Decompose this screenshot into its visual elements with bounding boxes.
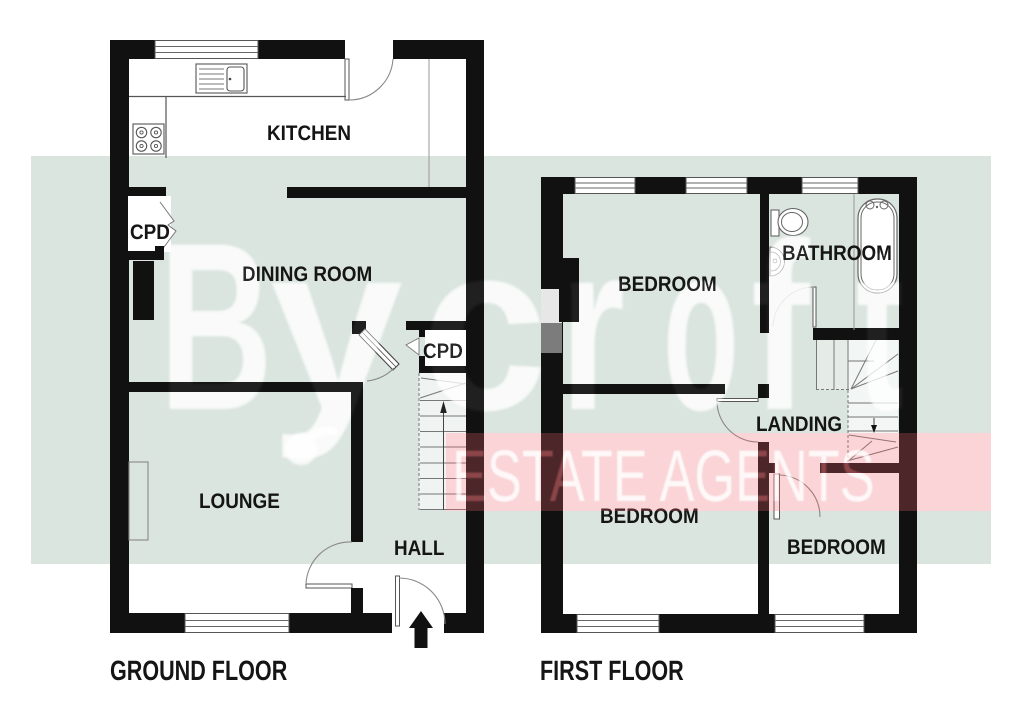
svg-text:LOUNGE: LOUNGE xyxy=(199,490,280,513)
svg-text:o: o xyxy=(663,193,739,460)
svg-text:FIRST FLOOR: FIRST FLOOR xyxy=(540,655,684,686)
svg-text:KITCHEN: KITCHEN xyxy=(267,122,351,145)
svg-text:r: r xyxy=(560,193,625,460)
svg-text:BEDROOM: BEDROOM xyxy=(787,536,886,559)
svg-text:c: c xyxy=(421,193,547,460)
svg-text:f: f xyxy=(751,193,811,460)
svg-text:GROUND FLOOR: GROUND FLOOR xyxy=(110,655,287,686)
svg-text:t: t xyxy=(856,193,904,460)
svg-text:y: y xyxy=(270,193,403,460)
svg-text:B: B xyxy=(159,193,273,460)
svg-text:HALL: HALL xyxy=(394,537,445,560)
svg-text:ESTATE AGENTS: ESTATE AGENTS xyxy=(452,436,875,517)
